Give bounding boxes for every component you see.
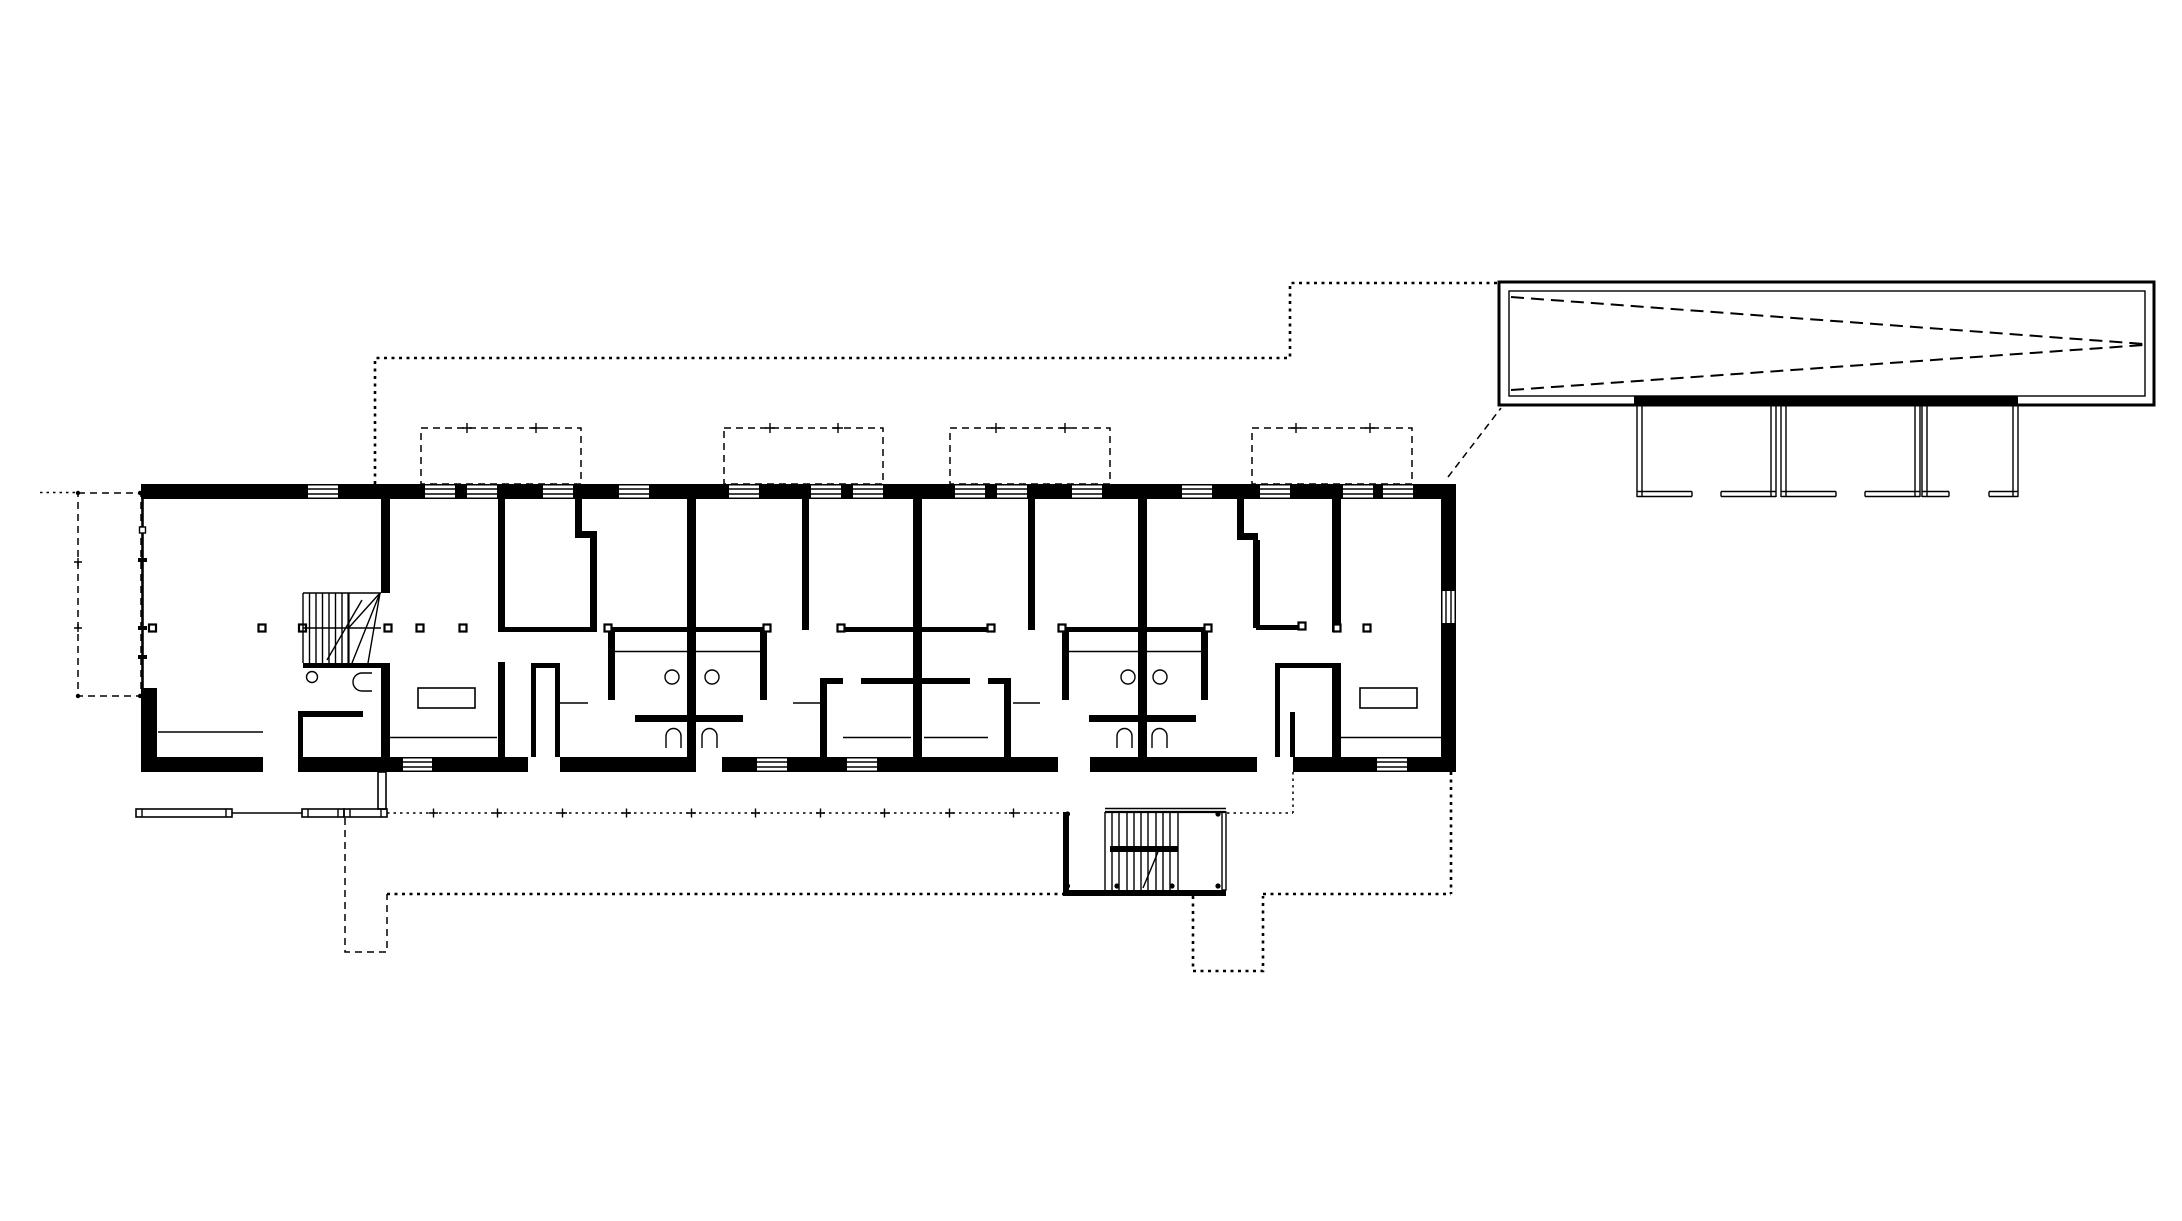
floor-plan-canvas (0, 0, 2182, 1221)
skylight-dormer-outlines (421, 423, 1412, 484)
toilet (702, 729, 717, 748)
window (1072, 486, 1102, 498)
window (543, 486, 573, 498)
toilet (1152, 729, 1167, 748)
window (997, 486, 1027, 498)
dormer-outline (950, 423, 1110, 484)
toilet (666, 729, 681, 748)
window (1383, 486, 1413, 498)
roof-taper-line (1511, 297, 2144, 344)
table (418, 688, 475, 708)
window (1377, 759, 1407, 771)
table (1360, 688, 1417, 708)
terrace-outline-left (40, 491, 142, 698)
east-wall (1441, 484, 1456, 772)
window (1343, 486, 1373, 498)
external-stair (1063, 809, 1226, 897)
window (757, 759, 787, 771)
dormer-outline (421, 423, 581, 484)
sink (1153, 670, 1167, 684)
roof-outer-edge (1499, 282, 2154, 405)
stall-header (1634, 396, 2018, 404)
roof-overhang-outline (375, 283, 1501, 484)
window (729, 486, 759, 498)
sink (665, 670, 679, 684)
site-boundary-dotted (345, 772, 1451, 971)
roof-plan-detail (1499, 282, 2154, 497)
entry-closet (1275, 663, 1332, 757)
main-stair (303, 593, 381, 663)
window (847, 759, 877, 771)
sink (1121, 670, 1135, 684)
benches (136, 772, 387, 817)
bath-fixtures (307, 670, 1168, 748)
toilet (1117, 729, 1132, 748)
stall-partition (1637, 404, 1776, 497)
window (467, 486, 497, 498)
roof-taper-line (1511, 345, 2144, 390)
sink (307, 672, 318, 683)
west-entry-wall (141, 688, 157, 772)
window (403, 759, 432, 771)
window (853, 486, 883, 498)
roof-inner-edge (1509, 291, 2145, 396)
canopy-post (378, 772, 386, 809)
entry-closet (531, 663, 560, 757)
dormer-outline (724, 423, 883, 484)
floor-plan-sheet (0, 0, 2182, 1221)
dormer-outline (1252, 423, 1412, 484)
south-wall (141, 757, 1456, 772)
window (425, 486, 455, 498)
window (955, 486, 985, 498)
toilet (353, 673, 372, 691)
bench (136, 809, 232, 817)
window (308, 486, 338, 498)
stair-bottom-wall (1063, 890, 1226, 896)
stair-landing-edge (1110, 846, 1178, 852)
window (1260, 486, 1290, 498)
stair-side-wall (1063, 812, 1069, 893)
stall-partition (1781, 404, 1920, 497)
window (619, 486, 649, 498)
window (1182, 486, 1212, 498)
window-east-wall (1443, 591, 1455, 623)
projection-line-to-detail (1448, 408, 1501, 477)
stall-partition (1922, 404, 2018, 497)
wc-room (298, 663, 381, 757)
sink (705, 670, 719, 684)
north-wall (141, 484, 1456, 499)
window (811, 486, 841, 498)
